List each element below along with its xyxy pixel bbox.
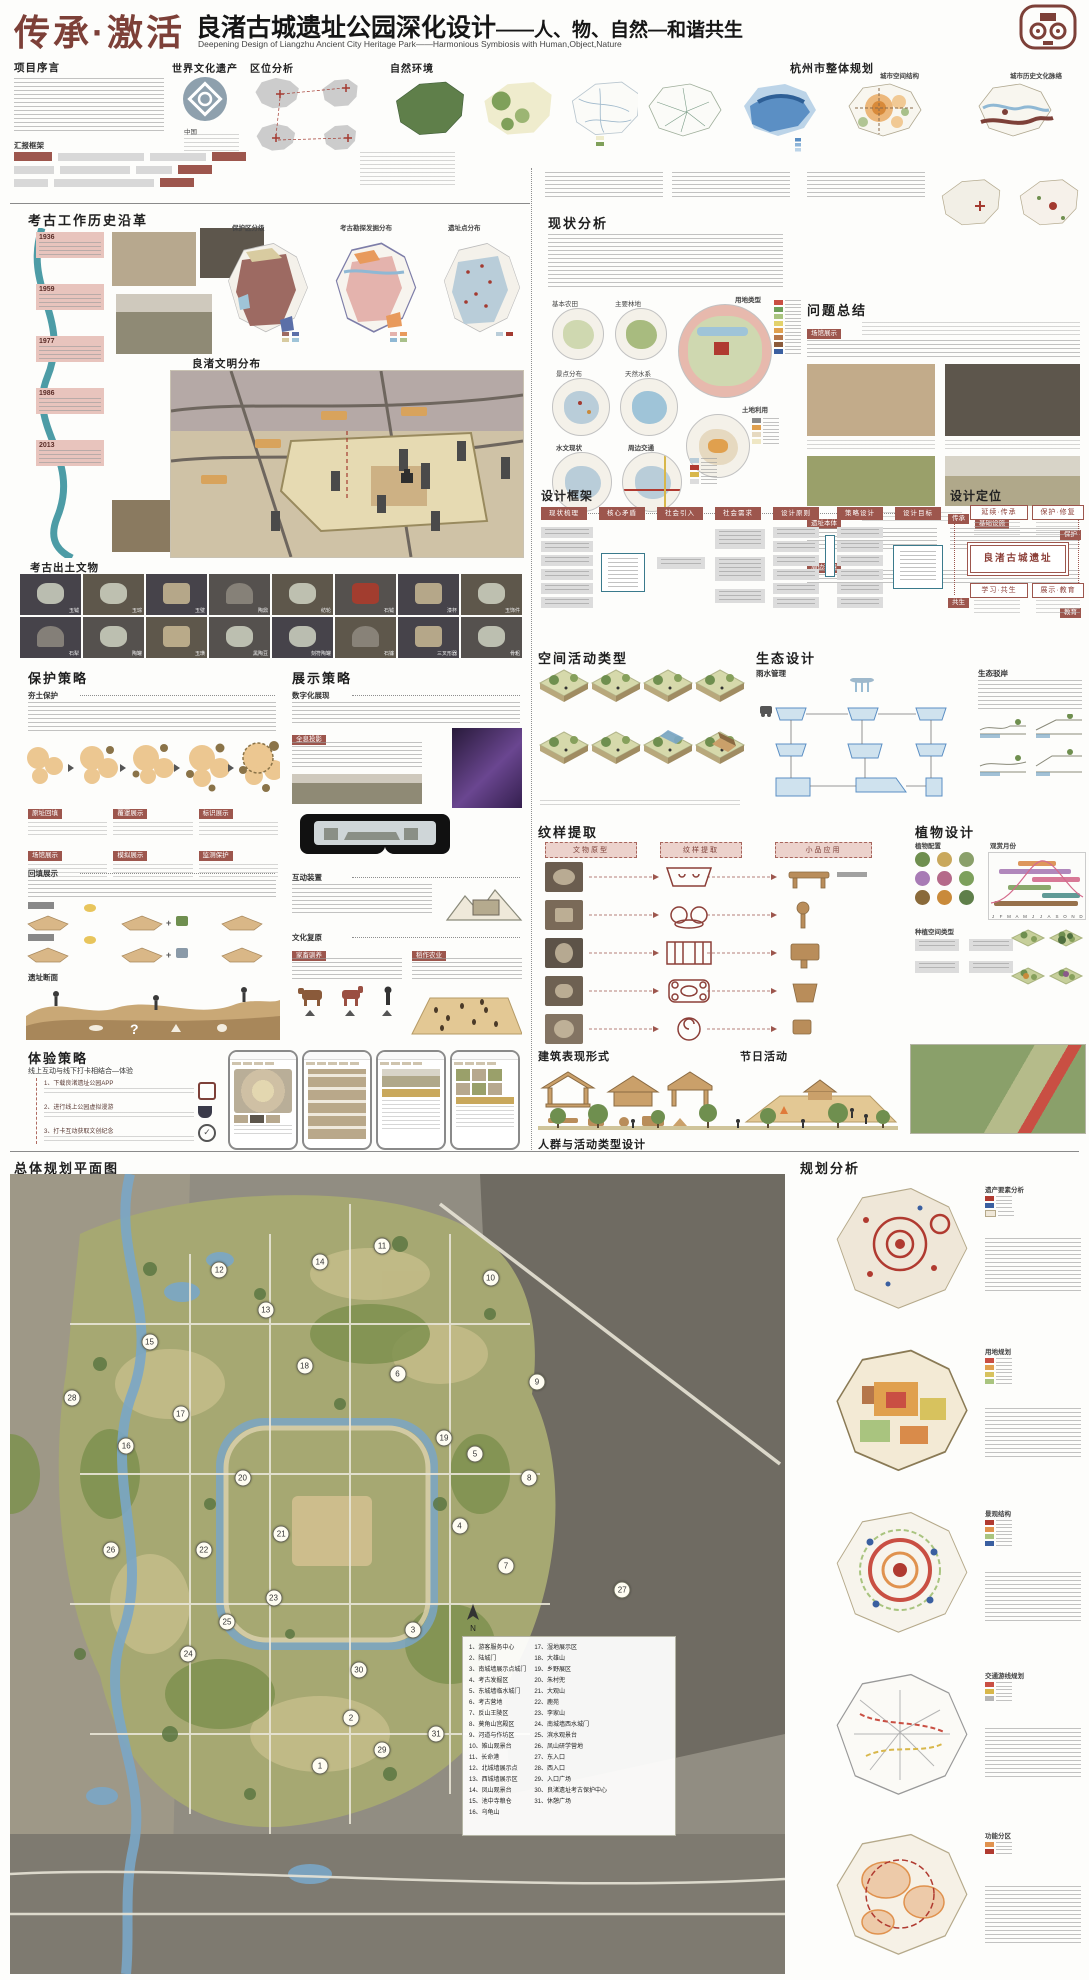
analysis-map-4 bbox=[830, 1670, 975, 1802]
marker-number: 11 bbox=[378, 1242, 386, 1251]
masterplan-map: 1234567891011121314151617181920212223242… bbox=[10, 1174, 785, 1974]
protection-method-chip: 标识展示 bbox=[199, 809, 233, 819]
map-marker: 25 bbox=[219, 1614, 236, 1631]
section-title-analysis: 规划分析 bbox=[800, 1158, 860, 1177]
artifact-photo: 玉璧 bbox=[146, 574, 207, 615]
bank-section-sketches bbox=[978, 714, 1084, 802]
month-label: M bbox=[1021, 914, 1029, 919]
body-text bbox=[985, 1238, 1081, 1294]
protection-sub1: 夯土保护 bbox=[28, 690, 58, 701]
analysis-map-2 bbox=[830, 1346, 975, 1478]
circle-map-traffic bbox=[622, 452, 682, 512]
artifact-label: 石犁 bbox=[69, 650, 79, 657]
experience-step-text: 2、进行线上公园虚拟漫游 bbox=[44, 1105, 113, 1111]
crowd-section-strip bbox=[538, 1100, 898, 1132]
legend-item: 9、河道与作坊区 bbox=[469, 1731, 526, 1742]
corner-box: 学习·共生 bbox=[970, 583, 1028, 598]
dotted-rule bbox=[352, 937, 520, 938]
circle-map-water bbox=[620, 378, 678, 436]
interactive-screen-sketch bbox=[445, 880, 523, 926]
map-marker: 13 bbox=[257, 1302, 274, 1319]
dotted-arrow bbox=[954, 519, 955, 595]
analysis-map-label: 交通游线规划 bbox=[985, 1670, 1024, 1680]
site-sketch-photo bbox=[292, 774, 422, 804]
marker-number: 17 bbox=[176, 1410, 185, 1419]
section-title-experience: 体验策略 bbox=[28, 1048, 88, 1067]
dotted-rule bbox=[352, 695, 520, 696]
protection-grade-map bbox=[222, 232, 314, 347]
legend-item: 16、乌龟山 bbox=[469, 1808, 526, 1819]
map-marker: 18 bbox=[296, 1358, 313, 1375]
map-marker: 30 bbox=[350, 1662, 367, 1679]
map-marker: 15 bbox=[141, 1334, 158, 1351]
marker-number: 15 bbox=[145, 1338, 154, 1347]
map-marker: 10 bbox=[482, 1270, 499, 1287]
svg-text:+: + bbox=[166, 950, 171, 960]
exhibition-sub-culture: 文化复原 bbox=[292, 932, 322, 943]
experience-icons: ✓ bbox=[198, 1082, 218, 1142]
hangzhou-maps bbox=[645, 74, 1085, 164]
month-label: O bbox=[1061, 914, 1069, 919]
legend-item: 19、乡野展区 bbox=[534, 1665, 607, 1676]
circle-map-farm bbox=[552, 308, 604, 360]
historic-photo bbox=[112, 232, 196, 286]
side-chip: 共生 bbox=[948, 598, 969, 608]
marker-number: 26 bbox=[106, 1546, 115, 1555]
timeline-item: 1977 bbox=[36, 336, 104, 362]
column-divider bbox=[531, 168, 532, 1150]
section-title-preface: 项目序言 bbox=[14, 60, 60, 75]
body-text bbox=[985, 1572, 1081, 1622]
map-marker: 7 bbox=[498, 1558, 515, 1575]
legend-item: 17、湿地展示区 bbox=[534, 1643, 607, 1654]
survey-map bbox=[330, 232, 422, 347]
artifact-photo: 三叉形器 bbox=[398, 617, 459, 658]
protection-sub2: 回填展示 bbox=[28, 868, 58, 879]
section-title-protection: 保护策略 bbox=[28, 668, 88, 687]
month-label: J bbox=[1029, 914, 1037, 919]
legend-item: 12、北城墙展示点 bbox=[469, 1764, 526, 1775]
culture-restoration-diagram bbox=[296, 984, 522, 1040]
section-title-report-framework: 汇报框架 bbox=[14, 140, 44, 151]
body-text bbox=[14, 78, 164, 132]
analysis-map-label: 用地规划 bbox=[985, 1346, 1011, 1356]
section-title-artifacts: 考古出土文物 bbox=[30, 560, 99, 575]
flow-step: 社会引入 bbox=[657, 507, 703, 520]
marker-number: 5 bbox=[473, 1450, 477, 1459]
dotted-rule bbox=[80, 695, 275, 696]
liangzhu-mask-logo-icon bbox=[1018, 3, 1078, 51]
photo-caption bbox=[807, 440, 935, 452]
legend-item: 23、李家山 bbox=[534, 1709, 607, 1720]
section-title-archaeo-history: 考古工作历史沿革 bbox=[28, 210, 148, 229]
marker-number: 8 bbox=[527, 1474, 531, 1483]
month-label: D bbox=[1077, 914, 1085, 919]
flow-step: 设计目标 bbox=[895, 507, 941, 520]
timeline-item: 1959 bbox=[36, 284, 104, 310]
map-marker: 2 bbox=[343, 1710, 360, 1727]
hangzhou-sub1-label: 城市空间结构 bbox=[880, 70, 919, 80]
analysis-map-5 bbox=[830, 1830, 975, 1962]
timeline-text bbox=[39, 294, 101, 308]
artifact-label: 陶罐 bbox=[132, 650, 142, 657]
exhibition-sub-digital: 数字化展现 bbox=[292, 690, 330, 701]
flow-step: 社会需求 bbox=[715, 507, 761, 520]
circle-label-hydro: 水文现状 bbox=[556, 442, 582, 452]
rammed-earth-diagram bbox=[24, 738, 280, 796]
month-label: J bbox=[989, 914, 997, 919]
body-text bbox=[412, 958, 522, 980]
circle-map-landuse bbox=[678, 304, 772, 398]
circle-label-farm: 基本农田 bbox=[552, 298, 578, 308]
marker-number: 23 bbox=[269, 1594, 278, 1603]
plant-photos bbox=[915, 852, 977, 905]
body-text bbox=[974, 600, 1020, 614]
artifact-label: 漆杯 bbox=[447, 607, 457, 614]
artifact-photo: 石镰 bbox=[335, 617, 396, 658]
map2-label: 考古勘探发掘分布 bbox=[340, 222, 392, 232]
vr-glasses-icon bbox=[300, 810, 450, 862]
map-marker: 9 bbox=[529, 1374, 546, 1391]
flow-step: 策略设计 bbox=[837, 507, 883, 520]
experience-step-text: 3、打卡互动获取文创纪念 bbox=[44, 1129, 113, 1135]
map-marker: 14 bbox=[312, 1254, 329, 1271]
marker-number: 7 bbox=[504, 1562, 508, 1571]
protection-label-grid: 原址回填 覆罩展示 标识展示 场馆展示 模拟展示 监测保护 bbox=[28, 802, 278, 880]
landuse-legend bbox=[774, 300, 801, 356]
experience-subtitle: 线上互动与线下打卡相结合—体验 bbox=[28, 1066, 133, 1076]
body-text bbox=[28, 880, 276, 898]
artifact-label: 三叉形器 bbox=[437, 650, 457, 657]
artifact-photo: 骨耜 bbox=[461, 617, 522, 658]
protection-method: 监测保护 bbox=[199, 844, 278, 880]
artifact-photo: 陶罐 bbox=[83, 617, 144, 658]
civilization-map bbox=[170, 370, 524, 558]
protection-method: 模拟展示 bbox=[113, 844, 192, 880]
legend-item: 4、考古发掘区 bbox=[469, 1676, 526, 1687]
timeline-text bbox=[39, 398, 101, 412]
marker-number: 20 bbox=[238, 1474, 247, 1483]
body-text bbox=[28, 702, 276, 732]
experience-step: 1、下载良渚遗址公园APP bbox=[44, 1078, 194, 1096]
timeline-item: 1986 bbox=[36, 388, 104, 414]
artifact-photo: 玉璜 bbox=[146, 617, 207, 658]
timeline-text bbox=[39, 242, 101, 256]
problem-photo-field bbox=[807, 456, 935, 506]
marker-number: 4 bbox=[457, 1522, 461, 1531]
marker-number: 16 bbox=[122, 1442, 131, 1451]
artifact-label: 玉饰件 bbox=[505, 607, 520, 614]
marker-number: 22 bbox=[199, 1546, 208, 1555]
app-screen-artifacts bbox=[302, 1050, 372, 1150]
artifact-label: 玉璜 bbox=[195, 650, 205, 657]
hangzhou-sub2-label: 城市历史文化脉络 bbox=[1010, 70, 1062, 80]
bloom-calendar-chart: JFMAMJJASOND bbox=[988, 852, 1086, 920]
section-title-problems: 问题总结 bbox=[807, 300, 867, 319]
calendar-months: JFMAMJJASOND bbox=[989, 914, 1085, 919]
protection-method-chip: 模拟展示 bbox=[113, 851, 147, 861]
body-text bbox=[292, 742, 422, 770]
marker-number: 12 bbox=[215, 1266, 224, 1275]
protection-method: 原址回填 bbox=[28, 802, 107, 838]
map-marker: 11 bbox=[374, 1238, 391, 1255]
map-marker: 8 bbox=[521, 1470, 538, 1487]
app-screen-map bbox=[228, 1050, 298, 1150]
location-maps bbox=[248, 76, 380, 162]
legend-item: 20、朱村兜 bbox=[534, 1676, 607, 1687]
legend-item: 18、大雄山 bbox=[534, 1654, 607, 1665]
exhibition-sub-interact: 互动装置 bbox=[292, 872, 322, 883]
section-title-plants: 植物设计 bbox=[915, 822, 975, 841]
circle-label-traffic: 周边交通 bbox=[628, 442, 654, 452]
map1-label: 保护区分级 bbox=[232, 222, 265, 232]
check-icon: ✓ bbox=[198, 1124, 216, 1142]
corner-box: 延续·传承 bbox=[970, 505, 1028, 520]
marker-number: 21 bbox=[277, 1530, 286, 1539]
analysis-map-3 bbox=[830, 1508, 975, 1640]
section-title-nature: 自然环境 bbox=[390, 60, 434, 75]
marker-number: 2 bbox=[349, 1714, 353, 1723]
marker-number: 29 bbox=[378, 1746, 387, 1755]
artifact-label: 石镰 bbox=[384, 650, 394, 657]
artifact-label: 玉琮 bbox=[132, 607, 142, 614]
map-marker: 20 bbox=[234, 1470, 251, 1487]
body-text bbox=[292, 958, 402, 980]
poster-title-suffix: ——人、物、自然—和谐共生 bbox=[496, 20, 743, 41]
experience-bracket bbox=[36, 1078, 37, 1144]
artifact-label: 石钺 bbox=[384, 607, 394, 614]
historic-photo bbox=[116, 294, 212, 354]
analysis-map-label: 遗产要素分析 bbox=[985, 1184, 1024, 1194]
legend-column-2: 17、湿地展示区18、大雄山19、乡野展区20、朱村兜21、大观山22、鹿苑23… bbox=[534, 1643, 607, 1829]
map-marker: 17 bbox=[172, 1406, 189, 1423]
map-marker: 1 bbox=[312, 1758, 329, 1775]
planting-flow bbox=[915, 938, 1013, 978]
map-markers: 1234567891011121314151617181920212223242… bbox=[10, 1174, 785, 1974]
pattern-header-2: 纹样提取 bbox=[660, 842, 742, 858]
body-text bbox=[1036, 600, 1080, 614]
protection-method-chip: 覆罩展示 bbox=[113, 809, 147, 819]
section-title-civilization: 良渚文明分布 bbox=[192, 356, 261, 371]
map-marker: 28 bbox=[64, 1390, 81, 1407]
analysis-map-label: 功能分区 bbox=[985, 1830, 1011, 1840]
svg-text:?: ? bbox=[130, 1021, 139, 1037]
north-arrow: N bbox=[465, 1604, 481, 1633]
artifact-photo: 纺轮 bbox=[272, 574, 333, 615]
timeline-year: 1986 bbox=[39, 390, 101, 397]
backfill-diagram: ++ bbox=[26, 902, 278, 966]
map-marker: 21 bbox=[273, 1526, 290, 1543]
artifact-label: 纺轮 bbox=[321, 607, 331, 614]
artifact-photo: 石钺 bbox=[335, 574, 396, 615]
analysis-map-label: 景观结构 bbox=[985, 1508, 1011, 1518]
circle-label-spots: 景点分布 bbox=[556, 368, 582, 378]
section-title-eco: 生态设计 bbox=[756, 648, 816, 667]
map-marker: 6 bbox=[389, 1366, 406, 1383]
legend-item: 8、莫角山宫殿区 bbox=[469, 1720, 526, 1731]
planting-tiles bbox=[1010, 928, 1086, 1004]
photo-caption bbox=[945, 440, 1080, 452]
section-title-framework: 设计框架 bbox=[541, 487, 593, 504]
body-text bbox=[985, 1886, 1081, 1946]
legend-column-1: 1、游客服务中心2、陆城门3、南城墙展示点城门4、考古发掘区5、东城墙临水城门6… bbox=[469, 1643, 526, 1829]
legend-item: 10、雉山观景台 bbox=[469, 1742, 526, 1753]
map3-label: 遗址点分布 bbox=[448, 222, 481, 232]
map-marker: 4 bbox=[451, 1518, 468, 1535]
marker-number: 27 bbox=[618, 1586, 627, 1595]
map-marker: 16 bbox=[118, 1438, 135, 1455]
timeline-year: 1977 bbox=[39, 338, 101, 345]
divider bbox=[10, 203, 530, 204]
legend-item: 22、鹿苑 bbox=[534, 1698, 607, 1709]
legend-item: 6、考古营地 bbox=[469, 1698, 526, 1709]
month-label: A bbox=[1045, 914, 1053, 919]
marker-number: 14 bbox=[316, 1258, 325, 1267]
artifact-photo: 玉钺 bbox=[20, 574, 81, 615]
artifact-photo: 陶鼎 bbox=[209, 574, 270, 615]
circle-label-forest: 主要林地 bbox=[615, 298, 641, 308]
body-text bbox=[978, 680, 1082, 710]
circle-label-landuse: 用地类型 bbox=[735, 294, 761, 304]
artifact-photo: 漆杯 bbox=[398, 574, 459, 615]
protection-method: 覆罩展示 bbox=[113, 802, 192, 838]
body-text bbox=[292, 702, 520, 724]
positioning-diagram: 传承 延续·传承 保护·修复 保护 良渚古城遗址 共生 学习·共生 展示·教育 … bbox=[948, 505, 1085, 617]
artifact-photo: 玉饰件 bbox=[461, 574, 522, 615]
section-title-crowd: 人群与活动类型设计 bbox=[538, 1136, 646, 1152]
plants-sub1: 植物配置 bbox=[915, 840, 941, 850]
artifact-photo: 玉琮 bbox=[83, 574, 144, 615]
experience-step: 3、打卡互动获取文创纪念 bbox=[44, 1126, 194, 1144]
circle-map-spots bbox=[552, 378, 610, 436]
legend-item: 29、入口广场 bbox=[534, 1775, 607, 1786]
analysis-legend-3 bbox=[985, 1520, 1012, 1548]
poster-subtitle-en: Deepening Design of Liangzhu Ancient Cit… bbox=[198, 39, 622, 49]
side-chip: 传承 bbox=[948, 514, 969, 524]
map-marker: 24 bbox=[180, 1646, 197, 1663]
month-label: M bbox=[1005, 914, 1013, 919]
body-text bbox=[862, 322, 1080, 336]
timeline-text bbox=[39, 450, 101, 464]
app-screen-booking bbox=[376, 1050, 446, 1150]
legend-item: 27、东入口 bbox=[534, 1753, 607, 1764]
artifact-label: 玉璧 bbox=[195, 607, 205, 614]
map-marker: 23 bbox=[265, 1590, 282, 1607]
legend-item: 1、游客服务中心 bbox=[469, 1643, 526, 1654]
section-title-heritage: 世界文化遗产 bbox=[172, 60, 238, 75]
map-marker: 19 bbox=[436, 1430, 453, 1447]
legend-item: 15、池中寺粮仓 bbox=[469, 1797, 526, 1808]
legend-item: 11、长命港 bbox=[469, 1753, 526, 1764]
rainwater-diagram bbox=[756, 678, 966, 806]
legend-item: 28、西入口 bbox=[534, 1764, 607, 1775]
spatial-tiles bbox=[538, 668, 746, 798]
hologram-photo bbox=[452, 728, 522, 808]
map-marker: 5 bbox=[467, 1446, 484, 1463]
marker-number: 1 bbox=[318, 1762, 322, 1771]
body-text bbox=[548, 234, 783, 290]
experience-step-text: 1、下载良渚遗址公园APP bbox=[44, 1081, 113, 1087]
poster-title-red: 传承·激活 bbox=[14, 4, 185, 56]
marker-number: 10 bbox=[486, 1274, 495, 1283]
marker-number: 3 bbox=[411, 1626, 415, 1635]
month-label: N bbox=[1069, 914, 1077, 919]
archaeo-timeline: 1936 1959 1977 1986 2013 bbox=[36, 232, 104, 466]
legend-item: 26、凤山研学营地 bbox=[534, 1742, 607, 1753]
protection-method: 标识展示 bbox=[199, 802, 278, 838]
jade-cong-icon bbox=[198, 1082, 216, 1100]
legend-item: 3、南城墙展示点城门 bbox=[469, 1665, 526, 1676]
sites-map bbox=[438, 232, 526, 347]
artifact-label: 骨耜 bbox=[510, 650, 520, 657]
traffic-legend bbox=[690, 458, 717, 486]
legend-item: 21、大观山 bbox=[534, 1687, 607, 1698]
analysis-legend-5 bbox=[985, 1842, 1012, 1856]
context-mini-maps bbox=[935, 168, 1085, 288]
framework-flowchart: 现状梳理 核心矛盾 社会引入 社会需求 设计原则 策略设计 设计目标 bbox=[541, 505, 941, 617]
marker-number: 31 bbox=[432, 1730, 441, 1739]
tile-captions bbox=[540, 800, 740, 808]
soil-legend bbox=[752, 418, 779, 446]
pattern-rows bbox=[545, 862, 875, 1044]
legend-item: 13、西城墙展示区 bbox=[469, 1775, 526, 1786]
plants-sub2: 观赏月份 bbox=[990, 840, 1016, 850]
timeline-year: 1959 bbox=[39, 286, 101, 293]
marker-number: 13 bbox=[261, 1306, 270, 1315]
flow-step: 现状梳理 bbox=[541, 507, 587, 520]
marker-number: 18 bbox=[300, 1362, 309, 1371]
timeline-text bbox=[39, 346, 101, 360]
pottery-icon bbox=[198, 1106, 212, 1118]
section-cut-diagram: ? bbox=[26, 982, 280, 1040]
dotted-rule bbox=[352, 877, 520, 878]
artifact-photo-grid: 玉钺 玉琮 玉璧 陶鼎 纺轮 石钺 漆杯 玉饰件 石犁 陶罐 玉璜 黑陶豆 刻符… bbox=[20, 574, 522, 658]
masterplan-legend: 1、游客服务中心2、陆城门3、南城墙展示点城门4、考古发掘区5、东城墙临水城门6… bbox=[462, 1636, 676, 1836]
timeline-item: 2013 bbox=[36, 440, 104, 466]
dotted-rule bbox=[80, 873, 275, 874]
corner-box: 保护·修复 bbox=[1032, 505, 1084, 520]
analysis-map-1 bbox=[830, 1184, 975, 1316]
body-text bbox=[292, 884, 432, 914]
marker-number: 6 bbox=[395, 1370, 399, 1379]
legend-item: 31、休憩广场 bbox=[534, 1797, 607, 1808]
flow-step: 核心矛盾 bbox=[599, 507, 645, 520]
circle-label-water: 天然水系 bbox=[625, 368, 651, 378]
artifact-label: 黑陶豆 bbox=[253, 650, 268, 657]
month-label: A bbox=[1013, 914, 1021, 919]
artifact-label: 玉钺 bbox=[69, 607, 79, 614]
svg-text:+: + bbox=[166, 918, 171, 928]
section-title-pattern: 纹样提取 bbox=[538, 822, 598, 841]
legend-item: 2、陆城门 bbox=[469, 1654, 526, 1665]
section-title-exhibition: 展示策略 bbox=[292, 668, 352, 687]
map-marker: 3 bbox=[405, 1622, 422, 1639]
body-text bbox=[985, 1728, 1081, 1778]
body-text bbox=[807, 340, 1080, 360]
map-marker: 12 bbox=[211, 1262, 228, 1279]
nature-maps bbox=[388, 74, 638, 164]
experience-step: 2、进行线上公园虚拟漫游 bbox=[44, 1102, 194, 1120]
artifact-label: 陶鼎 bbox=[258, 607, 268, 614]
artifact-photo: 刻符陶罐 bbox=[272, 617, 333, 658]
map-marker: 26 bbox=[102, 1542, 119, 1559]
body-text bbox=[545, 172, 663, 198]
analysis-legend-2 bbox=[985, 1358, 1012, 1386]
plants-sub3: 种植空间类型 bbox=[915, 926, 954, 936]
legend-item: 14、凤山观景台 bbox=[469, 1786, 526, 1797]
experience-steps: 1、下载良渚遗址公园APP 2、进行线上公园虚拟漫游 3、打卡互动获取文创纪念 bbox=[44, 1078, 194, 1144]
marker-number: 30 bbox=[354, 1666, 363, 1675]
